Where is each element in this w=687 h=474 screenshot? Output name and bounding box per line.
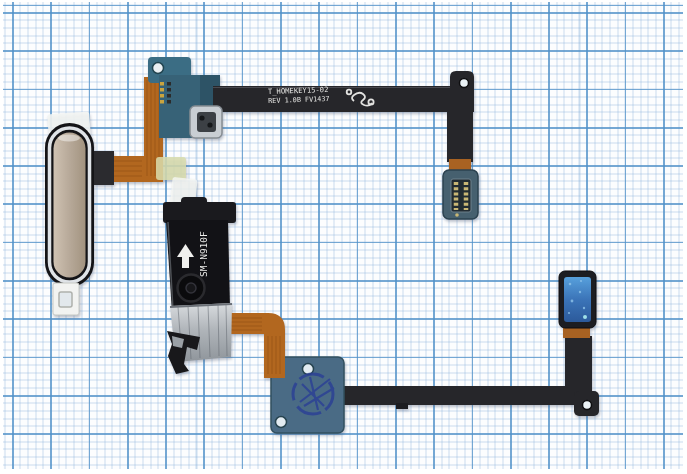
lower-vertical-leg [565,336,592,396]
photo-scene: T_HOMEKEY15-02 REV 1.0B FV1437 [0,0,687,474]
green-pcb-screw-hole [153,63,164,74]
model-marking: SM-N910F [198,231,209,277]
home-button-face [54,133,86,278]
upper-flex-assembly: T_HOMEKEY15-02 REV 1.0B FV1437 [45,57,478,315]
lower-connector-film [564,277,591,322]
microphone-hole-1 [199,115,204,120]
bracket-top-bar [163,202,236,223]
microphone-hole-2 [207,122,212,127]
lower-black-flex-band [338,386,582,405]
upper-connector-dot [455,213,459,217]
upper-black-flex-band [213,86,474,112]
lower-band-notch [396,403,408,409]
direction-arrow-stem [182,256,189,268]
microphone-core [197,112,216,132]
home-button-glare [58,135,80,142]
kapton-tab [156,157,186,180]
bracket-circle-core [186,283,196,293]
blue-pcb-hole-bottom [276,417,287,428]
flex-cable-photo: T_HOMEKEY15-02 REV 1.0B FV1437 [0,0,687,474]
upper-screw-hole [460,79,469,88]
button-bottom-bracket-hole [59,292,72,307]
upper-vertical-leg [447,110,473,162]
lower-connector-cyan-dot [583,315,587,319]
lower-screw-hole [583,401,592,410]
upper-screw-tab [450,71,474,112]
lower-flex-assembly: SM-N910F [163,197,599,433]
